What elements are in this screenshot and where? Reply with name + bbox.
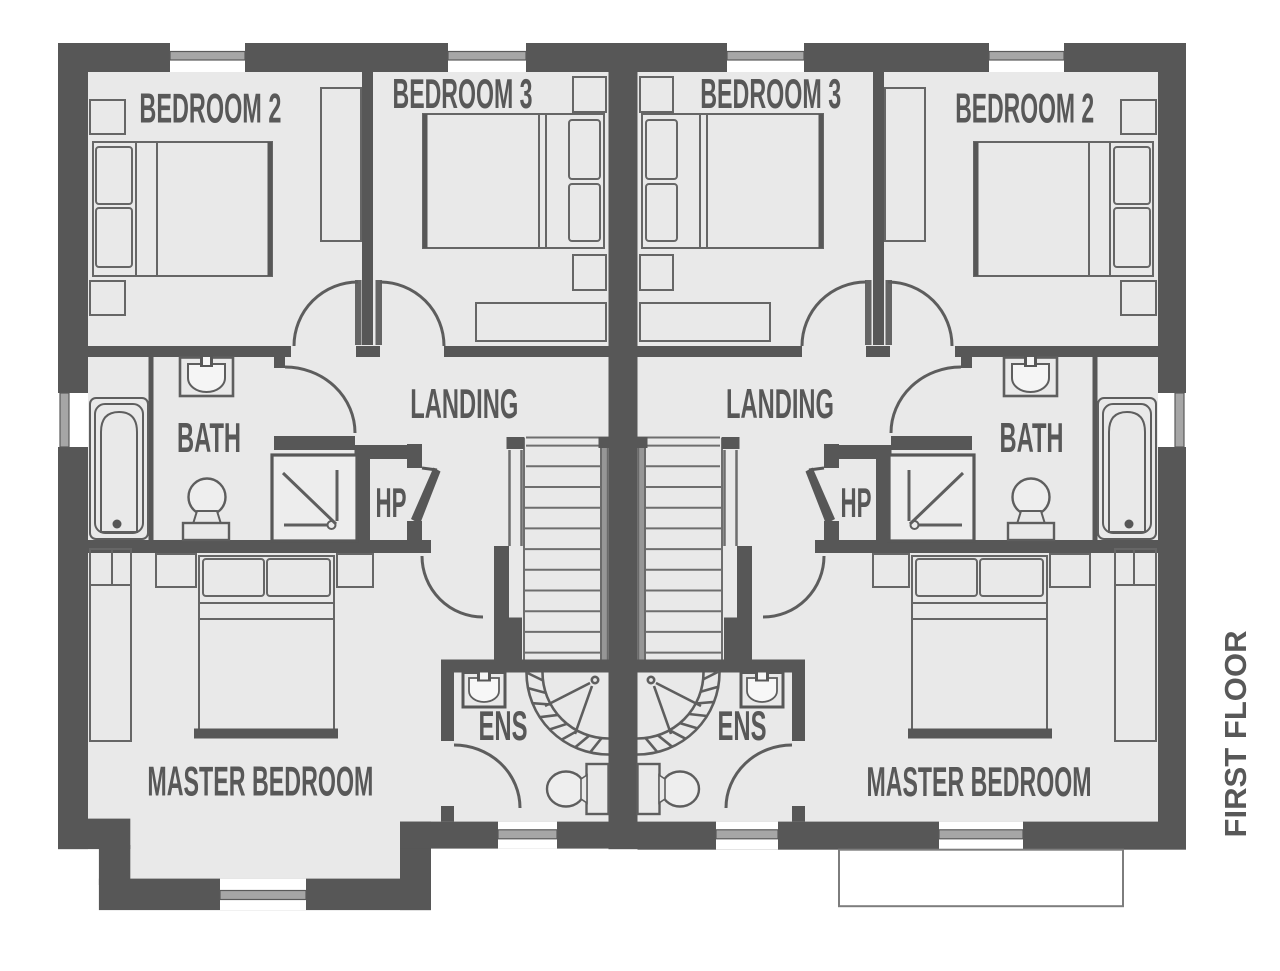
svg-text:LANDING: LANDING <box>410 380 518 427</box>
svg-text:ENS: ENS <box>479 702 528 749</box>
svg-text:LANDING: LANDING <box>726 380 834 427</box>
svg-text:HP: HP <box>841 479 872 526</box>
svg-text:BEDROOM 2: BEDROOM 2 <box>955 85 1094 132</box>
svg-text:MASTER BEDROOM: MASTER BEDROOM <box>147 758 373 805</box>
svg-text:BATH: BATH <box>177 414 241 461</box>
svg-text:HP: HP <box>376 479 407 526</box>
svg-text:ENS: ENS <box>718 702 767 749</box>
svg-text:BEDROOM 2: BEDROOM 2 <box>139 85 281 132</box>
svg-text:BATH: BATH <box>1000 414 1064 461</box>
svg-text:MASTER BEDROOM: MASTER BEDROOM <box>867 758 1092 805</box>
svg-text:BEDROOM 3: BEDROOM 3 <box>393 70 533 117</box>
svg-text:FIRST FLOOR: FIRST FLOOR <box>1218 627 1253 838</box>
svg-text:BEDROOM 3: BEDROOM 3 <box>700 70 841 117</box>
